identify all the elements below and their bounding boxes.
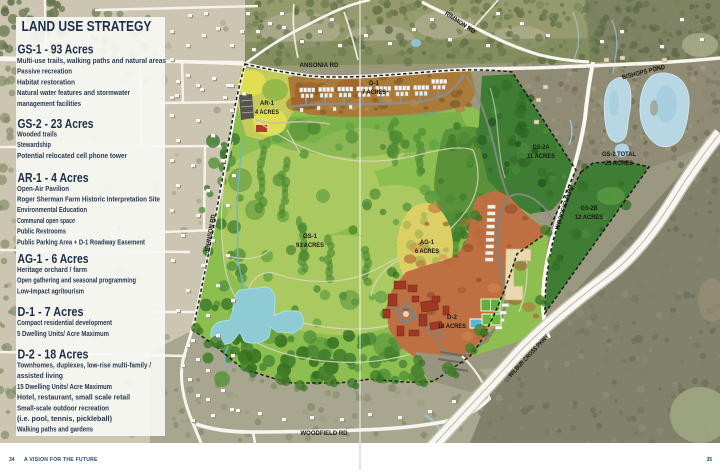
- svg-text:Roger Sherman Farm Historic In: Roger Sherman Farm Historic Interpretati…: [17, 195, 160, 204]
- svg-text:AG-1 - 6 Acres: AG-1 - 6 Acres: [18, 251, 89, 266]
- svg-text:Open gathering and seasonal pr: Open gathering and seasonal programming: [17, 276, 136, 285]
- svg-text:Potential relocated cell phone: Potential relocated cell phone tower: [17, 151, 127, 160]
- svg-text:Wooded trails: Wooded trails: [17, 130, 57, 139]
- svg-text:Natural water features and sto: Natural water features and stormwater: [17, 88, 130, 97]
- svg-text:D-1 - 7 Acres: D-1 - 7 Acres: [18, 304, 84, 319]
- svg-text:AR-1 - 4 Acres: AR-1 - 4 Acres: [18, 170, 89, 185]
- svg-text:Stewardship: Stewardship: [17, 140, 51, 149]
- svg-text:Public Restrooms: Public Restrooms: [17, 227, 66, 236]
- svg-text:Environmental Education: Environmental Education: [17, 205, 87, 214]
- svg-text:WOODFIELD RD: WOODFIELD RD: [301, 430, 349, 437]
- svg-text:Open-Air Pavilion: Open-Air Pavilion: [17, 184, 69, 193]
- svg-text:Townhomes, duplexes, low-rise: Townhomes, duplexes, low-rise multi-fami…: [17, 361, 152, 370]
- svg-text:15 Dwelling Units/ Acre Maximu: 15 Dwelling Units/ Acre Maximum: [17, 382, 112, 391]
- svg-text:Low-Impact agritourism: Low-Impact agritourism: [17, 286, 84, 295]
- svg-text:Communal open space: Communal open space: [17, 216, 75, 225]
- svg-text:GS-1 - 93 Acres: GS-1 - 93 Acres: [18, 42, 94, 57]
- svg-text:Heritage orchard / farm: Heritage orchard / farm: [17, 265, 87, 274]
- svg-text:(i.e. pool, tennis, pickleball: (i.e. pool, tennis, pickleball): [17, 414, 112, 423]
- svg-text:LAND USE STRATEGY: LAND USE STRATEGY: [22, 19, 152, 35]
- svg-text:Passive recreation: Passive recreation: [17, 67, 72, 76]
- svg-text:Multi-use trails, walking path: Multi-use trails, walking paths and natu…: [17, 56, 166, 65]
- svg-text:Walking paths and gardens: Walking paths and gardens: [17, 425, 93, 434]
- svg-text:ANSONIA RD: ANSONIA RD: [300, 62, 340, 69]
- svg-text:Public Parking Area + D-1 Road: Public Parking Area + D-1 Roadway Easeme…: [17, 237, 145, 246]
- svg-text:management facilities: management facilities: [17, 99, 81, 108]
- svg-text:Compact residential developmen: Compact residential development: [17, 318, 112, 327]
- svg-text:D-2 - 18 Acres: D-2 - 18 Acres: [18, 347, 89, 362]
- svg-text:Hotel, restaurant, small scale: Hotel, restaurant, small scale retail: [17, 393, 130, 402]
- svg-text:Habitat restoration: Habitat restoration: [17, 77, 75, 86]
- svg-text:Small-scale outdoor recreation: Small-scale outdoor recreation: [17, 403, 109, 412]
- svg-text:35: 35: [706, 457, 712, 463]
- svg-text:5 Dwelling Units/ Acre Maximum: 5 Dwelling Units/ Acre Maximum: [17, 329, 109, 338]
- svg-text:A VISION FOR THE FUTURE: A VISION FOR THE FUTURE: [24, 457, 98, 463]
- svg-text:assisted living: assisted living: [17, 371, 63, 380]
- svg-text:34: 34: [9, 457, 15, 463]
